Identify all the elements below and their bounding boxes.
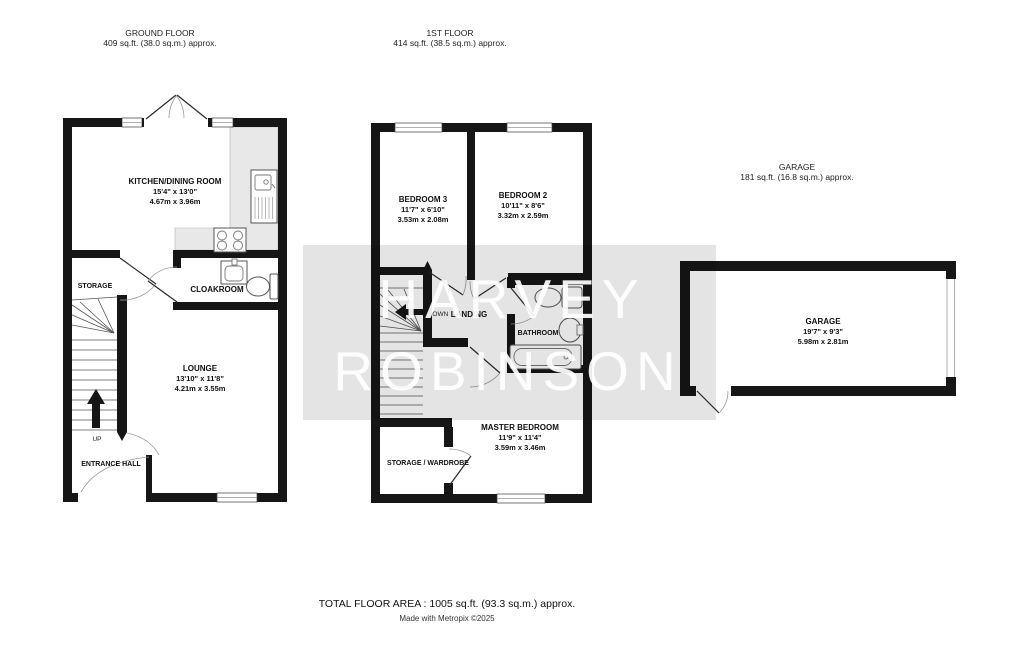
french-doors — [146, 95, 207, 119]
kitchen-dims-metric: 4.67m x 3.96m — [150, 197, 201, 206]
master-dims-imperial: 11'9" x 11'4" — [498, 433, 542, 442]
garage-area: 181 sq.ft. (16.8 sq.m.) approx. — [740, 172, 853, 182]
garage-dims-imperial: 19'7" x 9'3" — [803, 327, 843, 336]
bedroom3-dims-imperial: 11'7" x 6'10" — [401, 205, 445, 214]
french-door-opening — [144, 117, 208, 128]
kitchen-window-left — [122, 118, 142, 127]
cloakroom-label: CLOAKROOM — [190, 285, 244, 294]
lounge-label: LOUNGE — [183, 364, 218, 373]
garage-title: GARAGE — [779, 162, 816, 172]
garage-door-opening — [946, 279, 956, 377]
bedroom3-label: BEDROOM 3 — [399, 195, 448, 204]
kitchen-sink-icon — [251, 170, 277, 223]
staircase-up — [72, 297, 117, 430]
storage-wardrobe-label: STORAGE / WARDROBE — [387, 460, 469, 467]
watermark-line2: ROBINSON — [333, 340, 682, 402]
floorplan-page: GROUND FLOOR 409 sq.ft. (38.0 sq.m.) app… — [0, 0, 1024, 664]
cloakroom-door — [148, 267, 177, 302]
ground-floor-plan: GROUND FLOOR 409 sq.ft. (38.0 sq.m.) app… — [63, 28, 287, 502]
bedroom2-window — [507, 123, 552, 132]
watermark-line1: HARVEY — [378, 268, 645, 330]
master-dims-metric: 3.59m x 3.46m — [495, 443, 546, 452]
entrance-hall-label: ENTRANCE HALL — [81, 461, 141, 468]
first-floor-area: 414 sq.ft. (38.5 sq.m.) approx. — [393, 38, 506, 48]
garage-label: GARAGE — [805, 317, 841, 326]
master-bedroom-label: MASTER BEDROOM — [481, 423, 559, 432]
kitchen-window-right — [212, 118, 233, 127]
kitchen-dims-imperial: 15'4" x 13'0" — [153, 187, 197, 196]
first-floor-title: 1ST FLOOR — [426, 28, 473, 38]
toilet-icon — [247, 274, 279, 299]
lounge-dims-imperial: 13'10" x 11'8" — [176, 374, 224, 383]
ground-floor-title: GROUND FLOOR — [125, 28, 194, 38]
garage-dims-metric: 5.98m x 2.81m — [798, 337, 849, 346]
garage-plan: GARAGE 181 sq.ft. (16.8 sq.m.) approx. G… — [680, 162, 956, 413]
hob-icon — [214, 228, 246, 252]
lounge-dims-metric: 4.21m x 3.55m — [175, 384, 226, 393]
lounge-window — [217, 493, 257, 502]
bedroom2-dims-metric: 3.32m x 2.59m — [498, 211, 549, 220]
lounge-door-arc — [127, 433, 159, 455]
kitchen-door — [120, 258, 156, 300]
kitchen-label: KITCHEN/DINING ROOM — [129, 177, 222, 186]
metropix-credit: Made with Metropix ©2025 — [399, 614, 495, 623]
wardrobe-door — [449, 449, 471, 486]
master-bedroom-window — [497, 494, 545, 503]
up-arrow-icon — [87, 389, 105, 428]
footer: TOTAL FLOOR AREA : 1005 sq.ft. (93.3 sq.… — [319, 598, 576, 623]
watermark: HARVEY ROBINSON — [303, 245, 716, 420]
cloakroom-basin-icon — [221, 259, 247, 284]
bedroom2-label: BEDROOM 2 — [499, 191, 548, 200]
up-label: UP — [92, 436, 101, 443]
bedroom2-dims-imperial: 10'11" x 8'6" — [501, 201, 545, 210]
bedroom3-dims-metric: 3.53m x 2.08m — [398, 215, 449, 224]
ground-floor-area: 409 sq.ft. (38.0 sq.m.) approx. — [103, 38, 216, 48]
total-floor-area: TOTAL FLOOR AREA : 1005 sq.ft. (93.3 sq.… — [319, 598, 576, 610]
floorplan-drawing: GROUND FLOOR 409 sq.ft. (38.0 sq.m.) app… — [0, 0, 1024, 664]
bedroom3-window — [395, 123, 442, 132]
storage-label: STORAGE — [78, 283, 113, 290]
